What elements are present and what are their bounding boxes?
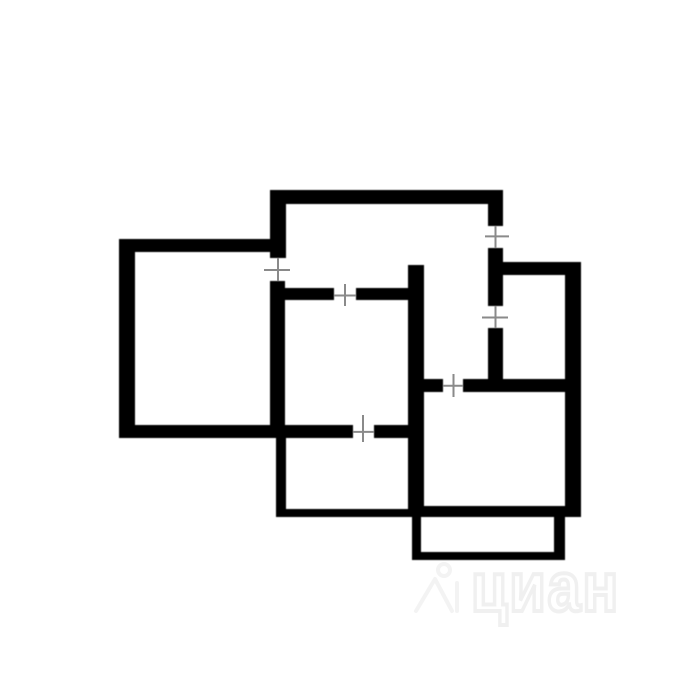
svg-text:циан: циан	[471, 547, 620, 626]
